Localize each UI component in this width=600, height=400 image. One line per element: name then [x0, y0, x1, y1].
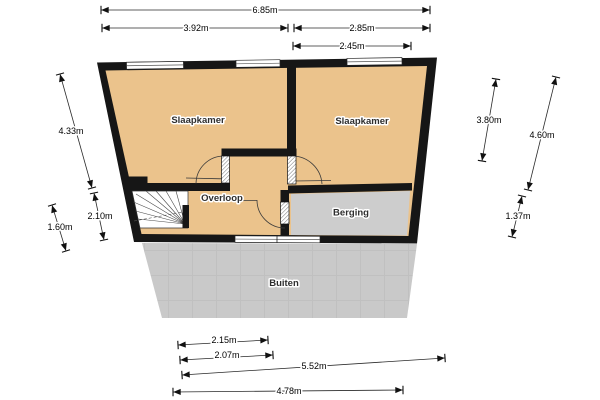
svg-text:1.60m: 1.60m — [47, 222, 72, 232]
floorplan-canvas: Slaapkamer Slaapkamer Overloop Berging B… — [0, 0, 600, 400]
svg-text:2.07m: 2.07m — [214, 350, 239, 360]
svg-text:2.10m: 2.10m — [87, 211, 112, 221]
dim-right-inner: 3.80m — [476, 79, 501, 161]
svg-text:2.85m: 2.85m — [349, 23, 374, 33]
room-label-overloop: Overloop — [201, 193, 243, 204]
svg-text:1.37m: 1.37m — [505, 211, 530, 221]
floorplan-svg: Slaapkamer Slaapkamer Overloop Berging B… — [0, 0, 600, 400]
svg-text:5.52m: 5.52m — [301, 361, 326, 371]
dim-bottom-diagonal: 5.52m — [182, 358, 445, 375]
svg-text:4.78m: 4.78m — [276, 386, 301, 396]
room-label-buiten: Buiten — [269, 278, 299, 289]
window-top-right — [347, 58, 402, 66]
svg-text:3.92m: 3.92m — [183, 23, 208, 33]
dim-top-total: 6.85m — [101, 5, 430, 15]
dim-bottom-inner-b: 2.07m — [180, 350, 273, 360]
room-label-berging: Berging — [333, 208, 369, 219]
dim-top-right-section: 2.85m — [294, 23, 430, 33]
dim-left-lower-inner: 2.10m — [87, 193, 112, 240]
svg-text:4.60m: 4.60m — [529, 130, 554, 140]
dim-top-right-inner: 2.45m — [293, 41, 411, 51]
room-label-bedroom-right: Slaapkamer — [335, 116, 389, 127]
dim-left-upper: 4.33m — [58, 74, 92, 188]
svg-text:3.80m: 3.80m — [476, 115, 501, 125]
dim-top-left-section: 3.92m — [102, 23, 288, 33]
svg-text:2.15m: 2.15m — [211, 335, 236, 345]
window-top-left — [126, 61, 183, 69]
dim-left-lower-outer: 1.60m — [47, 205, 72, 251]
dim-bottom-outer: 4.78m — [173, 386, 403, 396]
window-bottom — [235, 236, 320, 243]
dim-right-lower: 1.37m — [505, 196, 530, 237]
room-label-bedroom-left: Slaapkamer — [171, 115, 225, 126]
dim-right-outer: 4.60m — [528, 77, 556, 190]
staircase — [132, 191, 189, 228]
svg-text:6.85m: 6.85m — [252, 5, 277, 15]
svg-text:4.33m: 4.33m — [58, 126, 83, 136]
dim-bottom-inner-a: 2.15m — [178, 335, 268, 345]
window-top-middle — [236, 60, 280, 68]
svg-text:2.45m: 2.45m — [339, 41, 364, 51]
